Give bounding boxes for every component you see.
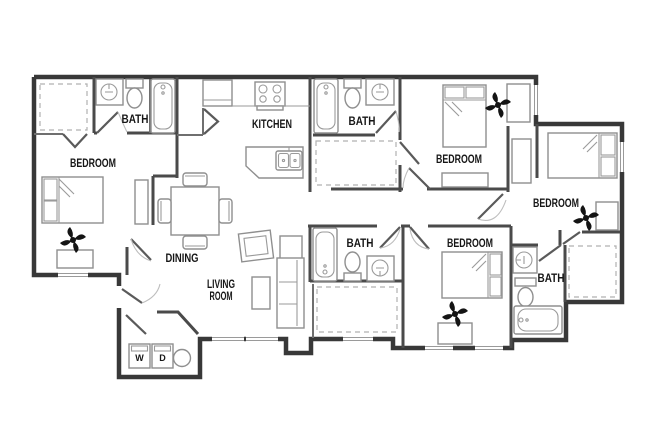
dining-chair (158, 199, 171, 223)
window (212, 336, 244, 342)
double-sink (276, 147, 302, 170)
bedroom-top-right (403, 84, 531, 189)
floor-plan-page: BEDROOM BATH KITCHEN BATH BEDROOM BEDROO… (0, 0, 660, 440)
pantry-bifold-door (204, 109, 218, 134)
closet-shelf-dashed (40, 84, 87, 130)
water-heater (174, 350, 191, 367)
closet-shelf-dashed (317, 287, 397, 332)
bath-top-middle (314, 79, 419, 185)
door-leaf (539, 245, 561, 261)
window (475, 345, 503, 351)
door-leaf (376, 111, 396, 133)
window (246, 336, 278, 342)
room-label-bedroom-top-right: BEDROOM (436, 154, 482, 166)
room-label-bedroom-bottom: BEDROOM (447, 238, 493, 250)
kitchen-island (246, 147, 303, 178)
vanity-sink (366, 79, 394, 105)
closet-door-leaf (400, 142, 419, 164)
living-room (238, 230, 304, 328)
vanity-sink (96, 79, 123, 105)
closet-shelf-dashed (316, 141, 396, 185)
fridge (203, 80, 232, 106)
dresser (438, 323, 472, 344)
ceiling-fan-icon (60, 227, 86, 253)
dresser (596, 202, 618, 230)
dining-chair (183, 236, 207, 249)
door-leaf (97, 112, 118, 133)
laundry-door-leaf (126, 315, 146, 334)
toilet (515, 278, 536, 307)
sofa (277, 258, 304, 328)
dining-chair (219, 199, 232, 223)
dresser (57, 250, 93, 268)
room-label-kitchen: KITCHEN (252, 119, 292, 131)
floor-plan-drawing: BEDROOM BATH KITCHEN BATH BEDROOM BEDROO… (0, 0, 660, 440)
closet-bifold-door (63, 134, 87, 147)
door-leaf (409, 168, 430, 189)
vanity-sink (367, 256, 394, 281)
bed (442, 252, 502, 298)
bedroom-door-leaf (131, 239, 151, 260)
window (425, 345, 453, 351)
bathtub (151, 79, 175, 133)
dining-area (158, 173, 232, 249)
dryer-label: D (159, 353, 166, 363)
window (58, 272, 88, 278)
desk (507, 84, 530, 122)
armchair (238, 230, 273, 262)
closet-shelf-dashed (569, 246, 616, 297)
window (533, 85, 539, 115)
door-swing-arc (478, 200, 506, 220)
coffee-table (252, 277, 270, 309)
bedroom-right (478, 133, 618, 231)
window (619, 142, 625, 172)
side-table (280, 236, 302, 259)
desk (135, 180, 148, 224)
room-label-bedroom-top-left: BEDROOM (70, 158, 116, 170)
room-label-living-line2: ROOM (210, 291, 233, 303)
dining-table (171, 187, 219, 235)
toilet (344, 252, 361, 281)
room-label-bath-bottom-middle: BATH (347, 238, 374, 250)
closet-shelf (512, 139, 531, 183)
window (343, 336, 373, 342)
room-label-bath-top-middle: BATH (349, 116, 376, 128)
room-label-bath-top-left: BATH (122, 114, 149, 126)
bed (548, 133, 617, 178)
bathtub (313, 228, 337, 281)
toilet (126, 79, 143, 108)
room-label-living-line1: LIVING (207, 279, 235, 291)
closet-door-leaf (563, 232, 580, 244)
entry-door-leaf (122, 289, 142, 303)
bathtub (314, 79, 338, 133)
room-label-bedroom-right: BEDROOM (533, 198, 579, 210)
dining-chair (183, 173, 207, 186)
door-leaf (478, 194, 503, 219)
bed (42, 177, 103, 223)
washer-label: W (135, 353, 144, 363)
room-label-dining: DINING (166, 253, 199, 265)
toilet (344, 79, 361, 108)
room-label-bath-bottom-right: BATH (538, 273, 565, 285)
door-swing-arc (403, 168, 409, 188)
bed (443, 85, 486, 147)
dresser (442, 173, 488, 187)
vanity-sink (513, 247, 537, 273)
door-swing-arc (142, 284, 160, 303)
bathtub (514, 306, 562, 334)
